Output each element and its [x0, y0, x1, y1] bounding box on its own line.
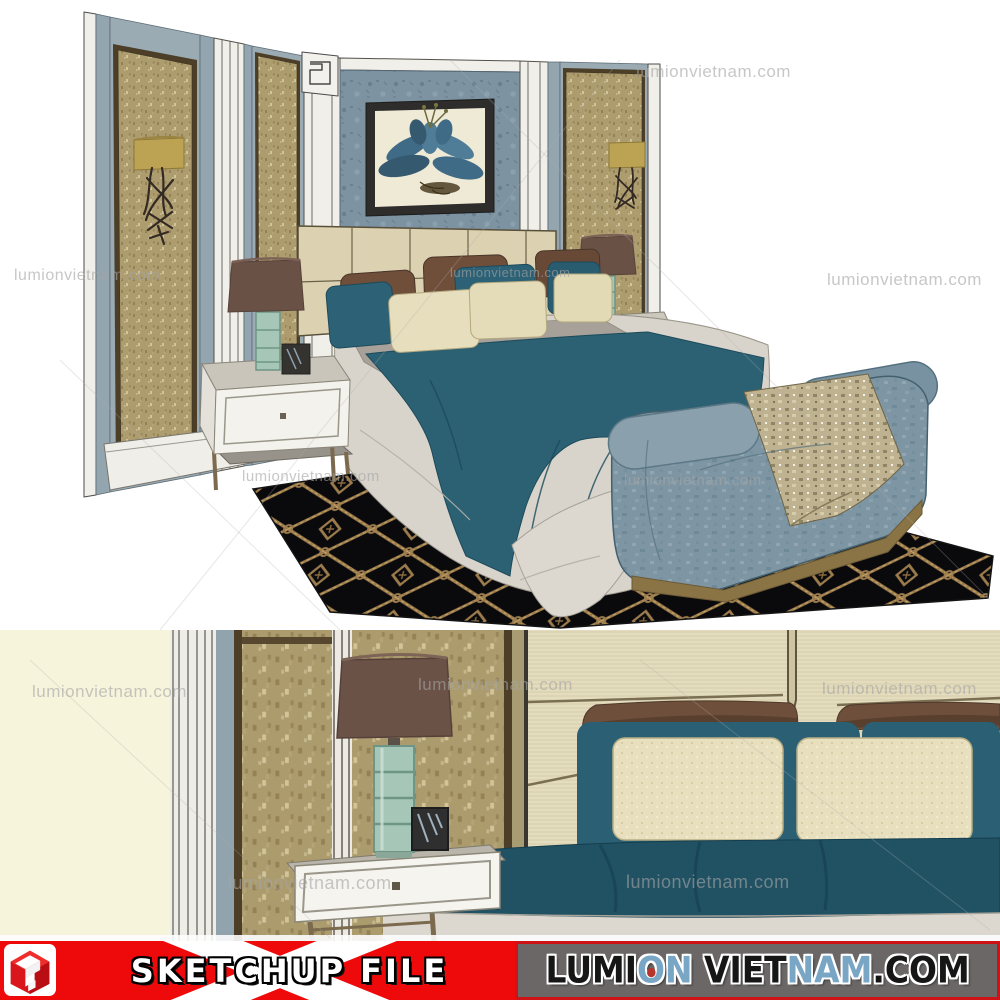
- sketchup-file-label: SKETCHUP FILE: [70, 941, 509, 1000]
- closeup-photo-frame: [412, 808, 448, 850]
- photo-frame-left: [282, 344, 310, 374]
- brand-letter-group: LUMI: [545, 950, 636, 992]
- banner-lumion-vietnam[interactable]: LUMION VIETNAM.COM: [515, 941, 1000, 1000]
- brand-letter-group: O: [637, 950, 665, 992]
- framed-artwork: [366, 99, 494, 216]
- banner-sketchup-file[interactable]: SKETCHUP FILE: [0, 941, 515, 1000]
- brand-letter-group: VIET: [692, 950, 786, 992]
- sketchup-cube-icon: [6, 946, 54, 994]
- greek-key-ornament: [302, 52, 338, 96]
- page: lumionvietnam.comlumionvietnam.comlumion…: [0, 0, 1000, 1000]
- brand-letter-group: N: [665, 950, 693, 992]
- brand-letter-group: .COM: [872, 950, 969, 992]
- brand-text: LUMION VIETNAM.COM: [545, 950, 969, 992]
- sketchup-logo: [4, 944, 56, 996]
- closeup-render: [0, 630, 1000, 941]
- brand-letter-group: NAM: [786, 950, 872, 992]
- main-render: [0, 0, 1000, 630]
